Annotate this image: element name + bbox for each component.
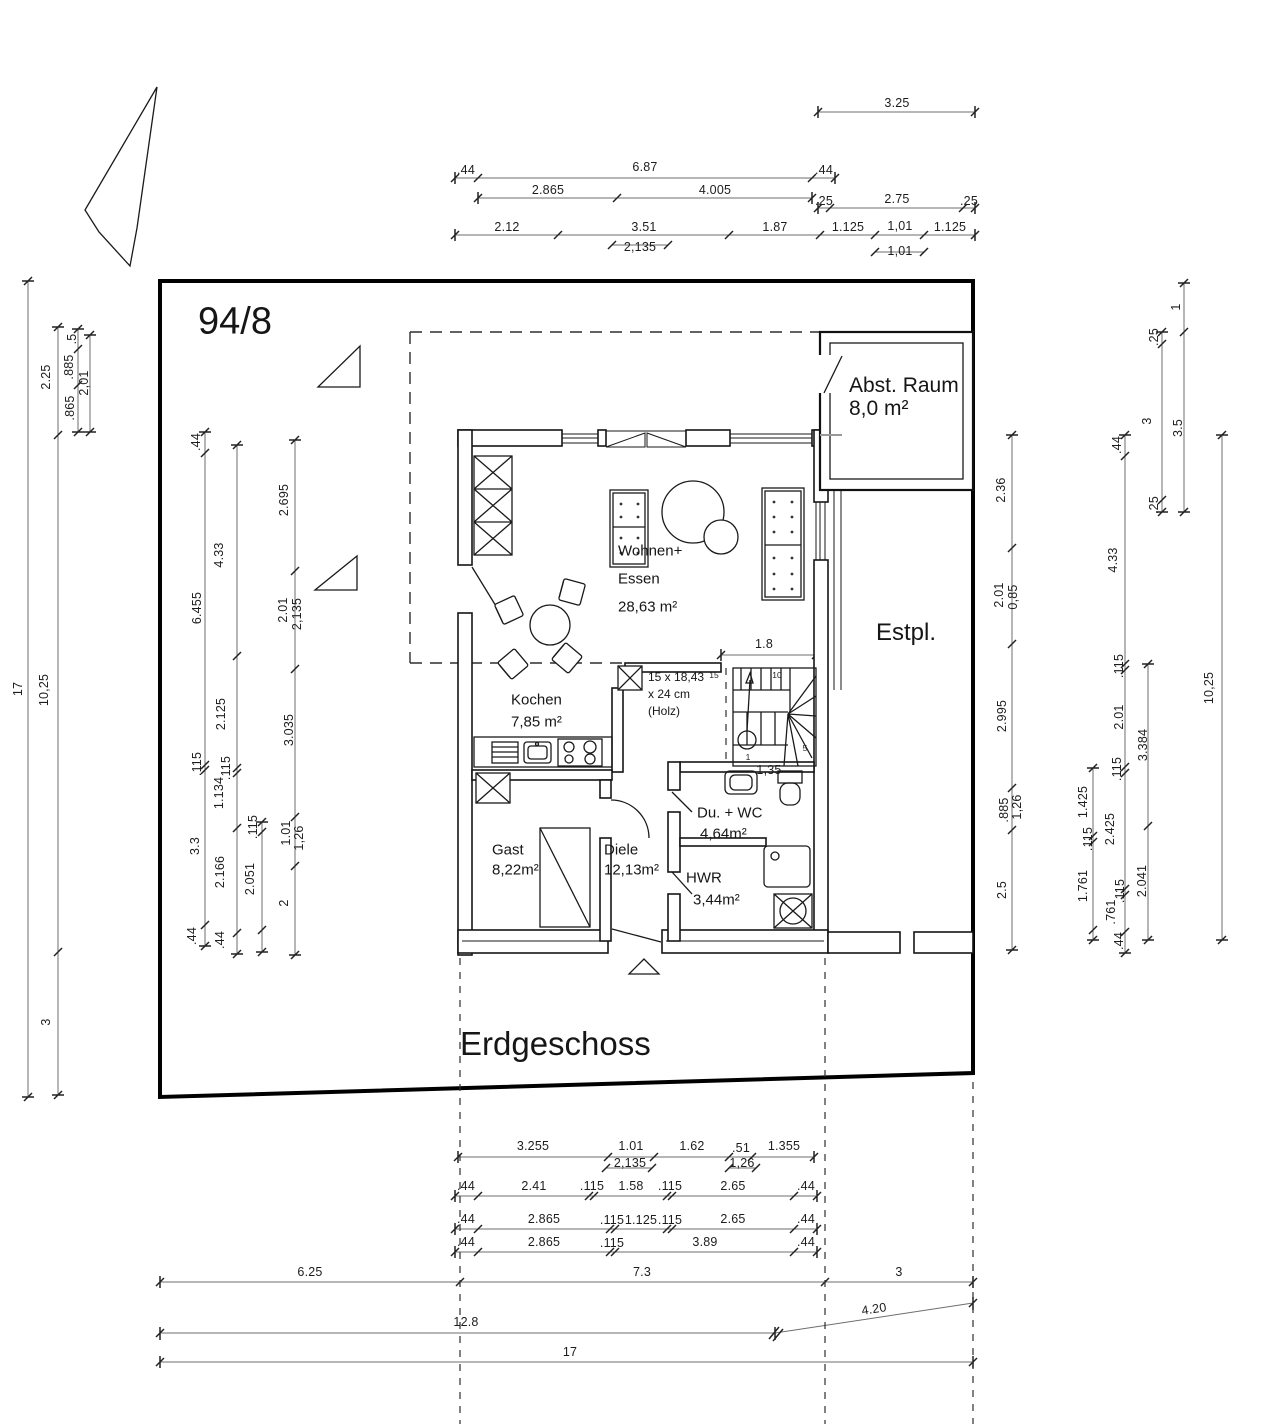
dim-label: 3 [895,1265,902,1279]
sideboard-right [762,488,804,600]
dim-label: 4.33 [1106,547,1120,572]
stair-note-1: 15 x 18,43 [648,670,704,684]
dim-label: 1.125 [934,220,966,234]
dim-label: 2,135 [624,240,656,254]
dim-label: .44 [797,1179,815,1193]
room-label-bath: Du. + WC [697,805,762,822]
dim-label: 2,135 [614,1156,646,1170]
dim-label: 10,25 [37,674,51,706]
dim-label: 1.62 [679,1139,704,1153]
room-area-storage: 8,0 m² [849,397,909,421]
dim-label: 1,26 [1010,794,1024,819]
north-arrow-icon [85,87,157,266]
dim-label: .44 [1112,932,1126,950]
chair [494,595,523,624]
dim-label: .44 [457,163,475,177]
dim-label: .115 [1081,827,1095,851]
dim-label: 1.761 [1076,870,1090,902]
dim-label: 1.01 [279,820,293,845]
room-label-storage: Abst. Raum [849,374,959,398]
dim-label: 3.384 [1136,729,1150,761]
dim-label: .44 [797,1235,815,1249]
dim-label: 3.25 [884,96,909,110]
dim-label: 1,01 [887,244,912,258]
dim-label: 12.8 [453,1315,478,1329]
stair-tread-number: 5 [803,743,808,753]
dim-label: .115 [580,1179,604,1193]
dim-label: 2.995 [995,700,1009,732]
dim-label: 2.01 [992,582,1006,607]
stair-note-2: x 24 cm [648,687,690,701]
dim-label: 2.865 [532,183,564,197]
dim-label: 1.125 [832,220,864,234]
chair [498,649,529,680]
dim-label: 3.89 [692,1235,717,1249]
dim-label: 4.33 [212,542,226,567]
entrance-triangle-icon [629,959,659,974]
dim-label: .115 [658,1213,682,1227]
room-label-hall: Diele [604,842,638,859]
dim-label: 1.8 [755,637,773,651]
floor-plan-drawing [0,0,1280,1424]
room-label-living-1: Wohnen+ [618,543,682,560]
dim-label: 1.425 [1076,786,1090,818]
dim-label: 2.051 [243,863,257,895]
dim-label: 2.125 [214,698,228,730]
dim-label: 3.255 [517,1139,549,1153]
dim-label: 6.25 [297,1265,322,1279]
dim-label: 2.5 [995,881,1009,899]
kitchen-counter [474,737,612,767]
bed [540,828,590,927]
room-area-living: 28,63 m² [618,599,677,616]
dim-label: .25 [1147,496,1161,514]
dim-label: 1.355 [768,1139,800,1153]
stair-note-3: (Holz) [648,704,680,718]
dining-table [530,605,570,645]
dim-label: .115 [600,1213,624,1227]
floorplan-canvas: 3.25.446.87.442.8654.005.252.75.252.123.… [0,0,1280,1424]
dim-label: 1.125 [625,1213,657,1227]
dim-label: 6.455 [190,592,204,624]
dim-label: .115 [246,815,260,839]
dim-label: 1,01 [887,219,912,233]
washbasin-icon [725,771,757,794]
room-area-utility: 3,44m² [693,892,740,909]
floor-title-label: Erdgeschoss [460,1025,651,1063]
dim-label: 2.865 [528,1212,560,1226]
dim-label: .44 [797,1212,815,1226]
parcel-number-label: 94/8 [198,301,272,344]
dim-label: 2.425 [1103,813,1117,845]
dim-label: 2.01 [276,597,290,622]
shower-icon [764,846,810,887]
dim-label: 2.65 [720,1179,745,1193]
chair [552,643,583,674]
stair-tread-number: 1 [746,752,751,762]
room-label-utility: HWR [686,870,722,887]
dim-label: 3.5 [1171,419,1185,437]
dim-label: 1.134 [212,777,226,809]
dim-label: 3.035 [282,714,296,746]
dim-label: .44 [815,163,833,177]
dim-label: 2.01 [1112,704,1126,729]
dim-label: 2,135 [290,598,304,630]
stair-tread-number: 10 [772,670,781,680]
room-label-guest: Gast [492,842,524,859]
dim-label: .5 [65,334,79,345]
dim-label: 1 [1169,303,1183,310]
dim-label: .44 [457,1235,475,1249]
room-area-hall: 12,13m² [604,862,659,879]
dim-label: .44 [213,931,227,949]
room-label-parking: Estpl. [876,619,936,647]
dim-label: .44 [457,1179,475,1193]
dim-label: .44 [189,433,203,451]
dim-label: .44 [185,927,199,945]
dim-label: 1,26 [292,825,306,850]
dim-label: 10,25 [1202,672,1216,704]
dim-label: 1.58 [618,1179,643,1193]
dim-label: 1.87 [762,220,787,234]
dim-label: .44 [457,1212,475,1226]
dim-label: 3.3 [188,837,202,855]
washer-icon [774,894,812,928]
dim-label: 2.695 [277,484,291,516]
dim-label: 17 [11,682,25,696]
dim-label: 2,01 [77,370,91,395]
dim-label: .25 [960,194,978,208]
toilet-icon [778,771,802,805]
room-area-guest: 8,22m² [492,862,539,879]
dim-label: .115 [1112,654,1126,678]
dim-label: 2.25 [39,364,53,389]
dim-label: 2.65 [720,1212,745,1226]
dim-label: 3 [39,1018,53,1025]
dim-label: 2.41 [521,1179,546,1193]
dim-label: .115 [658,1179,682,1193]
shaft-icon-2 [476,773,510,803]
room-label-kitchen: Kochen [511,692,562,709]
dim-label: 2.75 [884,192,909,206]
dim-label: 7.3 [633,1265,651,1279]
room-area-kitchen: 7,85 m² [511,714,562,731]
dim-label: 2.12 [494,220,519,234]
dim-label: 1,26 [729,1156,754,1170]
dim-label: 2.166 [213,856,227,888]
dim-label: .44 [1110,436,1124,454]
dim-label: .885 [62,354,76,379]
dim-label: 17 [563,1345,577,1359]
dim-label: 1,35 [756,763,781,777]
dim-label: .25 [815,194,833,208]
dim-label: 2.36 [994,477,1008,502]
shaft-icon [474,456,512,555]
dim-label: .761 [1104,899,1118,924]
roof-triangle-icons [315,346,360,590]
stair-tread-number: 15 [709,670,718,680]
room-area-bath: 4,64m² [700,826,747,843]
dim-label: 6.87 [632,160,657,174]
dim-label: 4.005 [699,183,731,197]
dim-label: .115 [190,752,204,776]
dim-label: 2 [277,899,291,906]
dim-label: 2.865 [528,1235,560,1249]
dim-label: 3.51 [631,220,656,234]
dim-label: .885 [997,797,1011,822]
shaft-icon-3 [618,666,642,690]
dim-label: .115 [600,1236,624,1250]
room-label-living-2: Essen [618,571,660,588]
dim-label: 1.01 [618,1139,643,1153]
dim-label: 2.041 [1135,865,1149,897]
dim-label: .25 [1147,328,1161,346]
dim-label: 3 [1140,417,1154,424]
chair [559,579,586,606]
dim-label: .115 [1110,757,1124,781]
dim-label: 0,85 [1006,584,1020,609]
dim-label: .865 [63,395,77,420]
dim-label: .51 [732,1141,750,1155]
